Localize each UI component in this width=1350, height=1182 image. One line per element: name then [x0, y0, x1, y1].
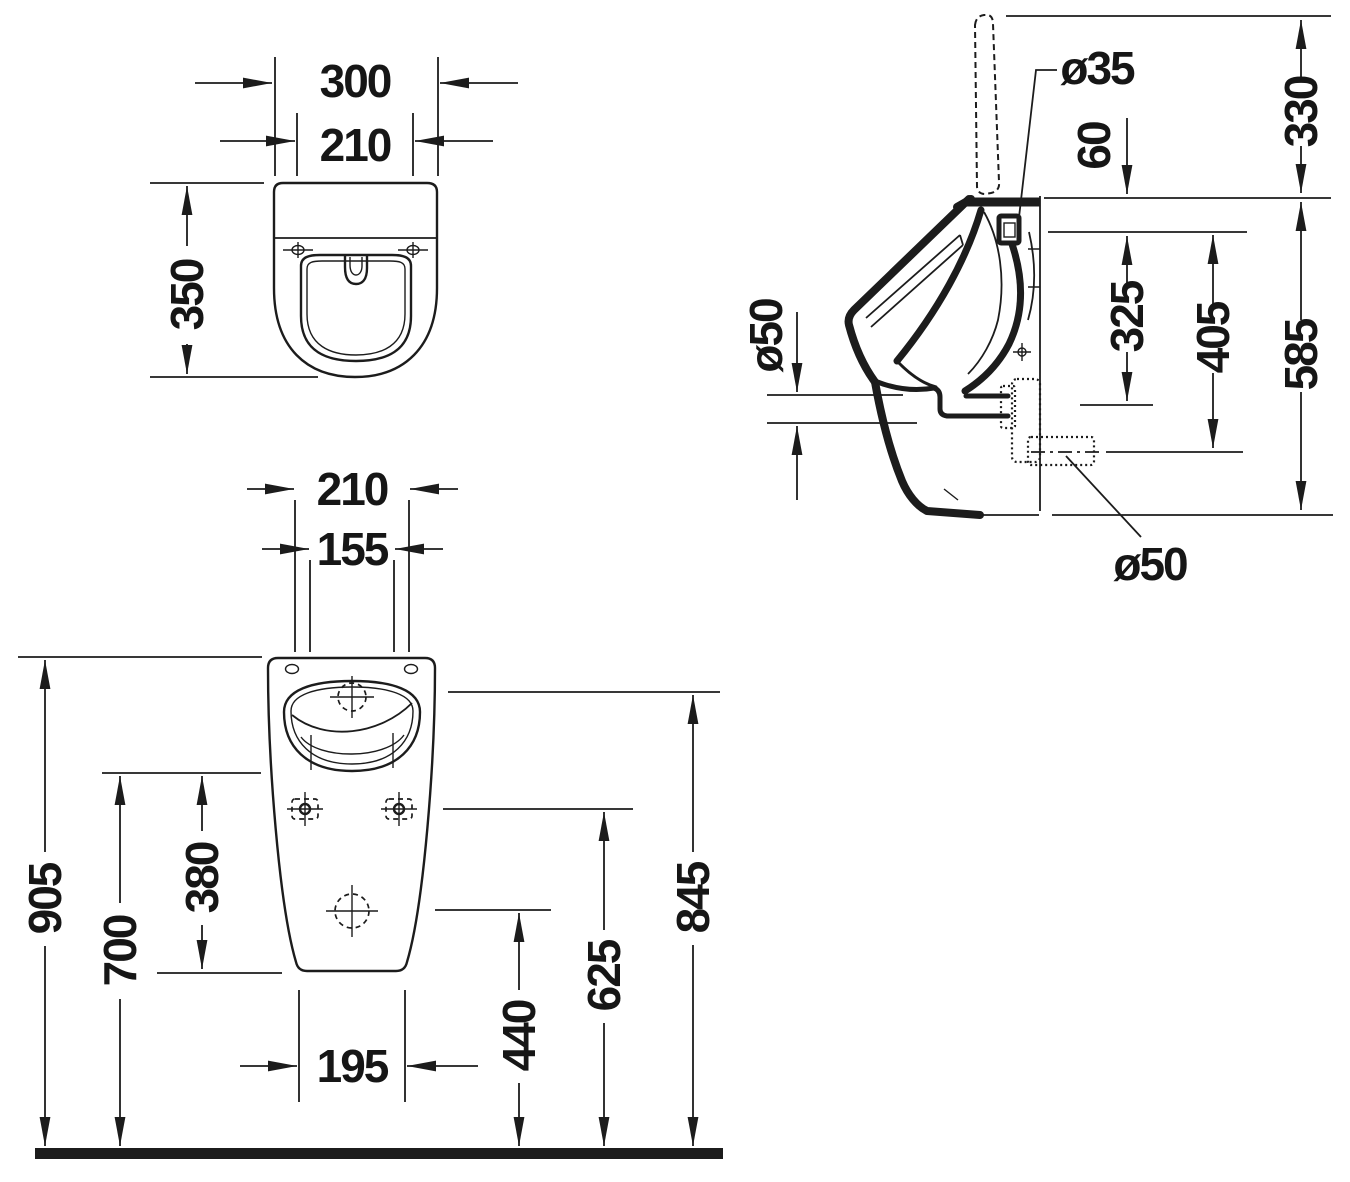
top-view: 300 210 350: [150, 55, 518, 377]
dim-top-outer-width: 300: [320, 55, 391, 107]
dim-side-inlet-drop: 60: [1068, 122, 1120, 170]
side-view-dimension-lines: [767, 16, 1333, 537]
front-view-fixing-points: [287, 792, 417, 826]
dim-top-depth: 350: [161, 259, 213, 330]
side-view-drain-hidden: [1001, 379, 1103, 465]
dim-front-top-width: 210: [317, 463, 388, 515]
dim-side-lid-height: 330: [1275, 76, 1327, 147]
front-view: 210 155 905 700 380 195 440 625 845: [18, 463, 723, 1159]
side-view: ø35 60 330 ø50 325 405 585 ø50: [740, 15, 1333, 590]
dim-side-rear-outlet-diameter: ø50: [740, 299, 792, 373]
dim-front-rim-height: 845: [667, 861, 719, 933]
urinal-dimension-drawing: 300 210 350: [0, 0, 1350, 1182]
dim-front-rim-width: 155: [317, 523, 389, 575]
dim-side-bottom-outlet-diameter: ø50: [1113, 538, 1187, 590]
side-view-lid-open: [975, 15, 999, 194]
front-view-body: [268, 658, 435, 971]
dim-side-inlet-diameter: ø35: [1060, 42, 1135, 94]
outlet-leader-line: [1066, 456, 1141, 537]
dim-front-overall-height: 905: [19, 862, 71, 934]
dim-front-bottom-width: 195: [317, 1040, 389, 1092]
floor-line: [35, 1148, 723, 1159]
top-view-basin: [301, 255, 411, 361]
dim-front-fixing-height: 625: [578, 939, 630, 1011]
dim-side-inlet-to-outlet: 405: [1187, 301, 1239, 373]
side-view-inlet-port: [999, 216, 1019, 243]
dim-side-mount-height: 585: [1275, 318, 1327, 390]
top-view-body: [274, 183, 437, 377]
side-view-body: [849, 199, 1103, 515]
dim-front-basin-underside-height: 700: [94, 915, 146, 986]
dim-side-inlet-to-fixing: 325: [1101, 280, 1153, 352]
dim-top-inner-width: 210: [320, 119, 391, 171]
side-view-fixing-symbol: [1013, 343, 1031, 361]
technical-drawing-page: 300 210 350: [0, 0, 1350, 1182]
dim-front-outlet-height: 440: [493, 1000, 545, 1071]
dim-front-lower-body-height: 380: [176, 842, 228, 913]
front-view-outlet-hole: [326, 885, 378, 937]
